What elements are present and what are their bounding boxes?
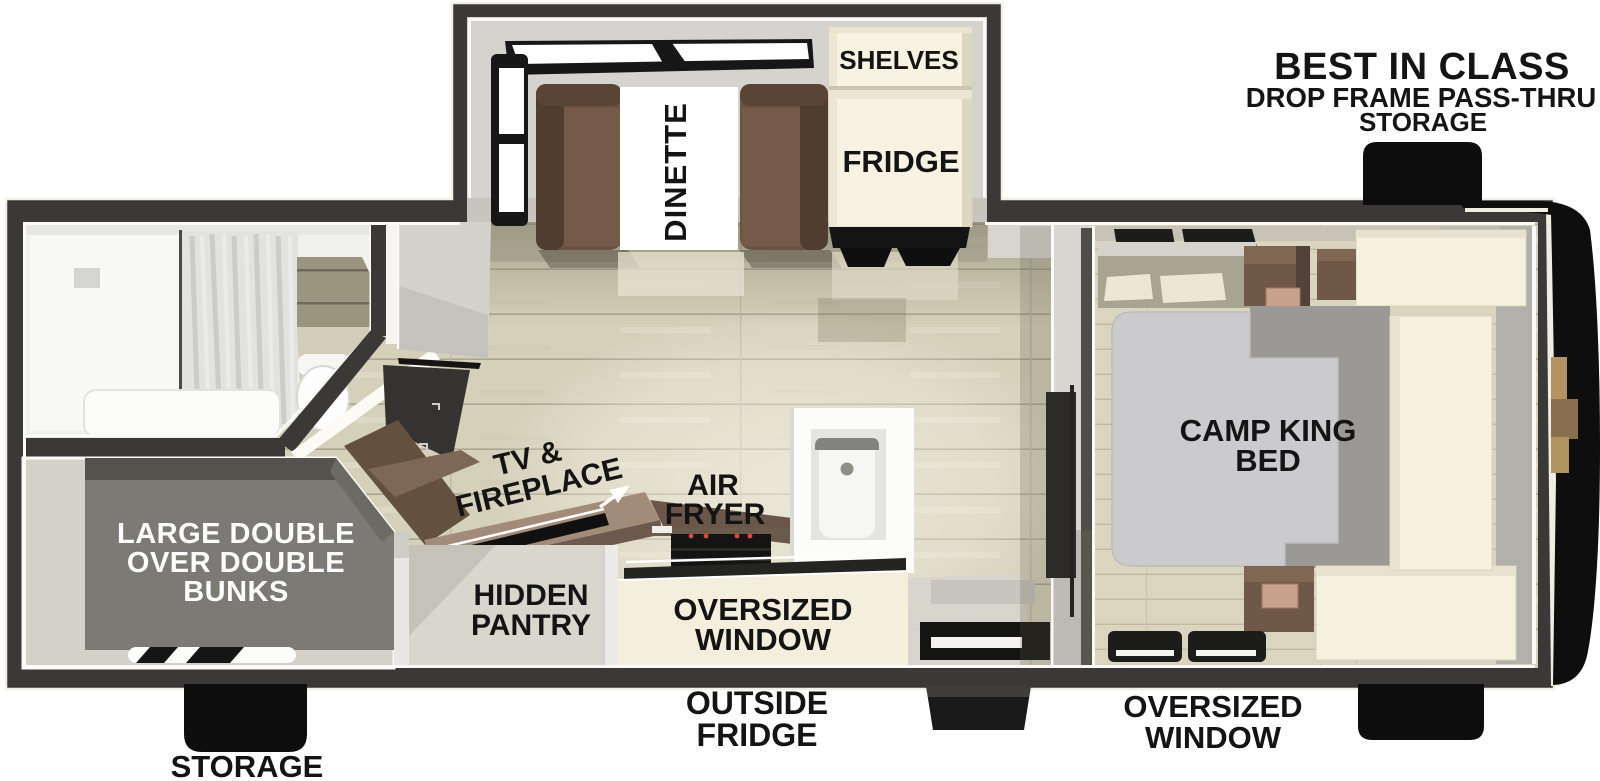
- svg-text:FRIDGE: FRIDGE: [842, 144, 959, 179]
- svg-text:STORAGE: STORAGE: [1359, 107, 1487, 137]
- svg-text:HIDDEN: HIDDEN: [473, 579, 588, 612]
- svg-text:WINDOW: WINDOW: [1145, 720, 1282, 755]
- svg-text:BUNKS: BUNKS: [183, 576, 289, 608]
- svg-text:LARGE DOUBLE: LARGE DOUBLE: [117, 518, 355, 550]
- svg-text:OVER DOUBLE: OVER DOUBLE: [127, 547, 345, 579]
- svg-text:SHELVES: SHELVES: [839, 45, 958, 75]
- svg-text:BED: BED: [1235, 443, 1300, 478]
- svg-text:FRIDGE: FRIDGE: [697, 717, 818, 753]
- svg-text:STORAGE: STORAGE: [171, 749, 324, 781]
- svg-text:DINETTE: DINETTE: [658, 102, 693, 242]
- svg-text:PANTRY: PANTRY: [471, 609, 591, 642]
- svg-text:FRYER: FRYER: [665, 498, 766, 531]
- svg-text:WINDOW: WINDOW: [695, 622, 832, 657]
- svg-text:OVERSIZED: OVERSIZED: [1123, 689, 1302, 724]
- svg-text:OUTSIDE: OUTSIDE: [686, 685, 828, 721]
